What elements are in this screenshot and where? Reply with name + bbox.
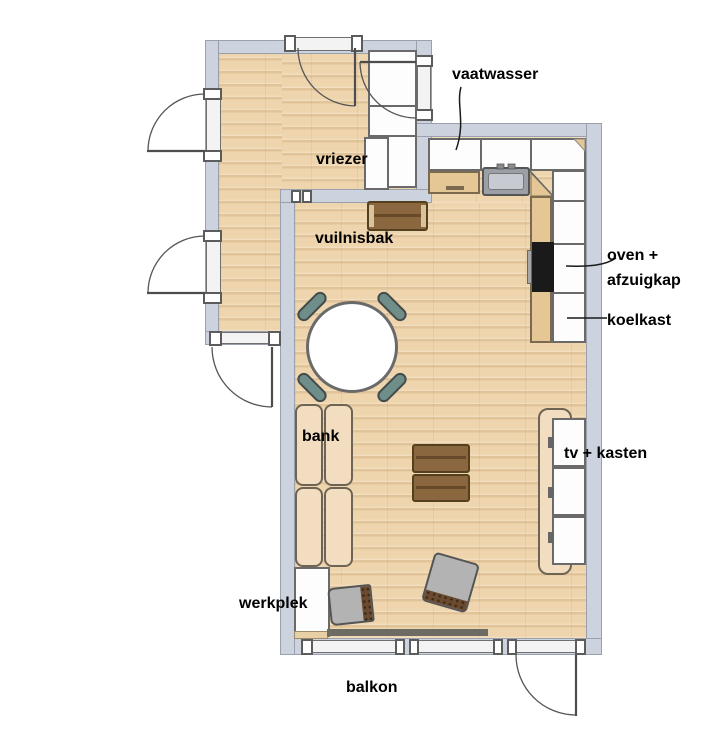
- coffee-table-crate: [412, 474, 470, 502]
- label-werkplek: werkplek: [239, 591, 307, 616]
- wall-kitchen-top: [416, 123, 602, 137]
- door-post: [268, 331, 281, 346]
- sofa-cushion: [324, 487, 353, 567]
- window-post: [351, 35, 363, 52]
- radiator: [327, 629, 488, 636]
- door-arc: [148, 236, 205, 293]
- door-arc: [516, 655, 576, 715]
- sofa-cushion: [295, 487, 323, 567]
- label-balkon: balkon: [346, 675, 398, 700]
- door-post: [203, 88, 222, 100]
- door-post: [415, 109, 433, 121]
- door-arc: [148, 94, 205, 151]
- door-post: [203, 150, 222, 162]
- window-post: [575, 639, 586, 655]
- door-post: [203, 230, 222, 242]
- wall-right: [586, 123, 602, 655]
- cabinet-handle: [548, 487, 554, 498]
- door-arc: [212, 347, 272, 407]
- coffee-table-crate: [412, 444, 470, 473]
- window-post: [507, 639, 517, 655]
- oven: [532, 242, 554, 292]
- window-balcony-1: [312, 640, 396, 653]
- interior-window-post: [302, 190, 312, 203]
- door-post: [209, 331, 222, 346]
- label-koelkast: koelkast: [607, 308, 671, 333]
- floor-plan: vaatwasser vriezer vuilnisbak oven + afz…: [0, 0, 722, 740]
- door-post: [415, 55, 433, 67]
- tv-cabinet: [552, 467, 586, 516]
- interior-window-post: [291, 190, 301, 203]
- cabinet-handle: [548, 437, 554, 448]
- label-tv-kasten: tv + kasten: [564, 441, 647, 466]
- label-vuilnisbak: vuilnisbak: [315, 226, 393, 251]
- sink: [482, 167, 530, 196]
- label-bank: bank: [302, 424, 339, 449]
- kitchen-counter-right: [552, 170, 586, 343]
- desk-chair: [327, 584, 375, 626]
- window-post: [284, 35, 296, 52]
- window-sill-strip: [294, 631, 328, 639]
- cabinet-handle: [548, 532, 554, 543]
- dishwasher-cabinet-front: [428, 171, 480, 194]
- window-post: [395, 639, 405, 655]
- dining-table: [306, 301, 398, 393]
- cabinet-room1: [364, 137, 389, 190]
- label-vaatwasser: vaatwasser: [452, 62, 538, 87]
- label-oven-afzuigkap: oven + afzuigkap: [607, 243, 681, 293]
- window-post: [493, 639, 503, 655]
- wall-living-left: [280, 189, 295, 655]
- window-room1-top: [287, 37, 360, 51]
- window-post: [409, 639, 419, 655]
- tv-cabinet: [552, 516, 586, 565]
- balcony-door-opening: [516, 640, 576, 653]
- room1-floor-lower: [219, 54, 282, 331]
- window-balcony-2: [418, 640, 494, 653]
- label-vriezer: vriezer: [316, 147, 368, 172]
- door-post: [203, 292, 222, 304]
- window-post: [301, 639, 313, 655]
